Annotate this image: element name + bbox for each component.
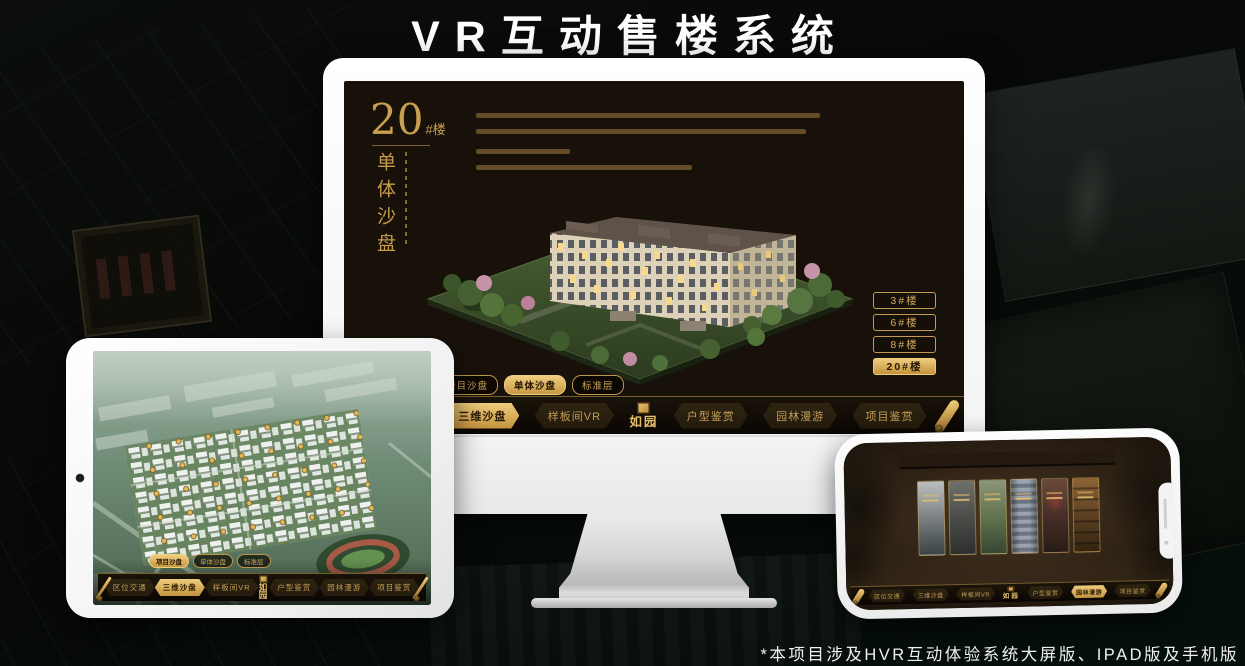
gallery-strip-group xyxy=(917,477,1101,556)
strip-label-marks xyxy=(922,499,938,501)
nav-item-3d-sandtable[interactable]: 三维沙盘 xyxy=(445,403,519,429)
phone-notch xyxy=(1158,482,1175,558)
footnote: *本项目涉及HVR互动体验系统大屏版、IPAD版及手机版 xyxy=(760,641,1239,665)
seal-icon xyxy=(259,575,268,583)
floor-button-8[interactable]: 8#楼 xyxy=(873,336,936,353)
nav-item-project-gallery[interactable]: 项目鉴赏 xyxy=(853,403,927,429)
logo-text: 如园 xyxy=(629,416,658,429)
phone-nav-garden-roam[interactable]: 园林漫游 xyxy=(1071,584,1107,598)
tablet-device: 项目沙盘 单体沙盘 标准层 区位交通 三维沙盘 样板间VR 如园 户型鉴赏 园林… xyxy=(66,338,454,618)
camera-icon xyxy=(76,474,84,482)
phone-frame: 区位交通 三维沙盘 样板间VR 如园 户型鉴赏 园林漫游 项目鉴赏 xyxy=(834,427,1183,619)
strip-label-marks xyxy=(953,498,969,500)
monitor-stand xyxy=(559,514,749,604)
floor-button-6[interactable]: 6#楼 xyxy=(873,314,936,331)
phone-nav-location-traffic[interactable]: 区位交通 xyxy=(869,589,905,603)
view-tab-group: 项目沙盘 单体沙盘 标准层 xyxy=(436,375,624,395)
gallery-strip-2[interactable] xyxy=(948,480,977,556)
floor-button-3[interactable]: 3#楼 xyxy=(873,292,936,309)
camera-icon xyxy=(1164,540,1168,544)
nav-item-unit-gallery[interactable]: 户型鉴赏 xyxy=(674,403,748,429)
nav-item-showroom-vr[interactable]: 样板间VR xyxy=(535,403,614,429)
phone-screen: 区位交通 三维沙盘 样板间VR 如园 户型鉴赏 园林漫游 项目鉴赏 xyxy=(843,437,1173,611)
ruyuan-logo: 如园 xyxy=(1003,586,1020,600)
tablet-bottom-nav: 区位交通 三维沙盘 样板间VR 如园 户型鉴赏 园林漫游 项目鉴赏 xyxy=(98,573,426,601)
ruyuan-logo: 如园 xyxy=(259,575,270,601)
gallery-strip-3[interactable] xyxy=(979,479,1008,555)
tablet-tab-single-sandtable[interactable]: 单体沙盘 xyxy=(193,554,233,568)
logo-text: 如园 xyxy=(259,584,270,601)
tablet-screen: 项目沙盘 单体沙盘 标准层 区位交通 三维沙盘 样板间VR 如园 户型鉴赏 园林… xyxy=(93,351,431,605)
strip-label-marks xyxy=(984,498,1000,500)
tablet-tab-standard-floor[interactable]: 标准层 xyxy=(237,554,271,568)
building-model-illustration[interactable] xyxy=(390,121,890,389)
phone-device: 区位交通 三维沙盘 样板间VR 如园 户型鉴赏 园林漫游 项目鉴赏 xyxy=(834,427,1183,619)
gallery-strip-5[interactable] xyxy=(1041,478,1070,554)
tab-standard-floor[interactable]: 标准层 xyxy=(572,375,624,395)
tablet-frame: 项目沙盘 单体沙盘 标准层 区位交通 三维沙盘 样板间VR 如园 户型鉴赏 园林… xyxy=(66,338,454,618)
tablet-nav-3d-sandtable[interactable]: 三维沙盘 xyxy=(155,579,205,596)
page-title: VR互动售楼系统 xyxy=(0,2,1245,64)
tablet-view-tab-group: 项目沙盘 单体沙盘 标准层 xyxy=(149,554,271,568)
bg-photo-right-top xyxy=(969,48,1245,302)
speaker-icon xyxy=(1164,498,1168,528)
bg-plaque xyxy=(72,215,212,338)
gallery-strip-1[interactable] xyxy=(917,480,946,556)
scroll-handle-icon[interactable] xyxy=(851,587,865,605)
phone-nav-unit-gallery[interactable]: 户型鉴赏 xyxy=(1027,585,1063,599)
floor-button-20[interactable]: 20#楼 xyxy=(873,358,936,375)
tab-single-sandtable[interactable]: 单体沙盘 xyxy=(504,375,566,395)
tablet-nav-unit-gallery[interactable]: 户型鉴赏 xyxy=(269,579,319,596)
scroll-handle-icon[interactable] xyxy=(1154,581,1168,599)
floor-button-group: 3#楼 6#楼 8#楼 20#楼 xyxy=(873,292,936,375)
nav-item-garden-roam[interactable]: 园林漫游 xyxy=(763,403,837,429)
gallery-strip-4[interactable] xyxy=(1010,478,1039,554)
strip-label-marks xyxy=(1046,496,1062,498)
strip-label-marks xyxy=(1077,496,1093,498)
monitor-base xyxy=(531,598,777,608)
phone-nav-3d-sandtable[interactable]: 三维沙盘 xyxy=(913,588,949,602)
promo-canvas: VR互动售楼系统 20#楼 单体沙盘 xyxy=(0,0,1245,666)
ruyuan-logo: 如园 xyxy=(629,402,658,429)
scroll-handle-icon[interactable] xyxy=(933,398,961,434)
tablet-nav-location-traffic[interactable]: 区位交通 xyxy=(105,579,155,596)
phone-nav-project-gallery[interactable]: 项目鉴赏 xyxy=(1115,584,1151,598)
tablet-nav-garden-roam[interactable]: 园林漫游 xyxy=(319,579,369,596)
strip-label-marks xyxy=(1015,497,1031,499)
phone-nav-showroom-vr[interactable]: 样板间VR xyxy=(956,587,995,601)
logo-text: 如园 xyxy=(1003,593,1020,600)
tablet-nav-showroom-vr[interactable]: 样板间VR xyxy=(205,579,259,596)
gallery-strip-6[interactable] xyxy=(1072,477,1101,553)
seal-icon xyxy=(637,402,650,414)
tablet-nav-project-gallery[interactable]: 项目鉴赏 xyxy=(369,579,419,596)
tablet-tab-project-sandtable[interactable]: 项目沙盘 xyxy=(149,554,189,568)
